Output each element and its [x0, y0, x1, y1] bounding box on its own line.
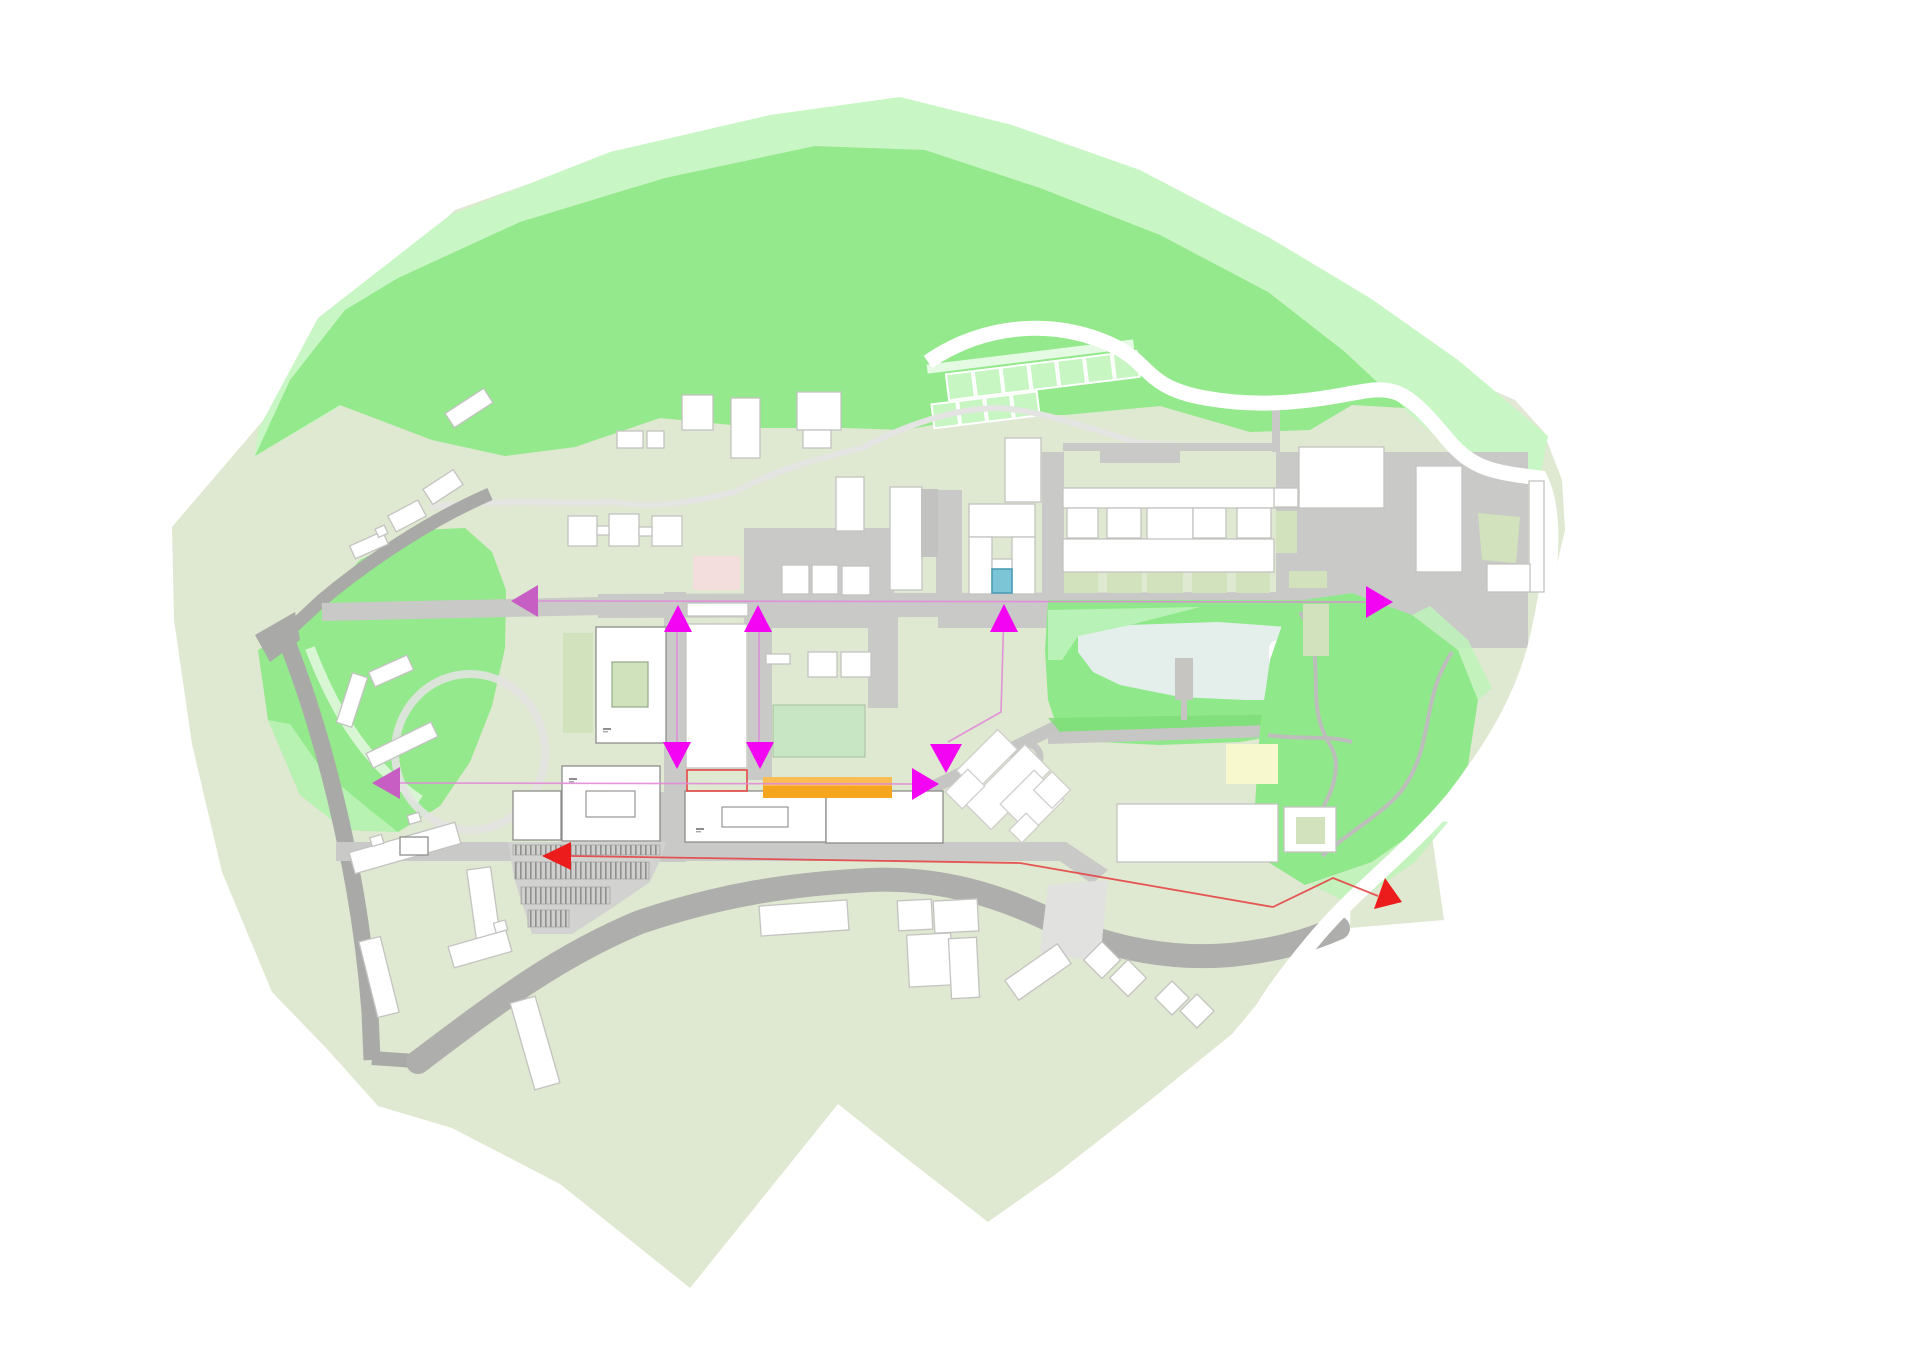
building-label-mark [696, 828, 704, 830]
pond-pier [1175, 658, 1193, 700]
building-footprint [1107, 508, 1141, 538]
building-footprint [969, 504, 1035, 537]
pink-building-footprint [693, 556, 740, 590]
building-footprint [639, 527, 652, 536]
building-footprint [826, 791, 943, 843]
building-footprint [1487, 564, 1530, 592]
building-footprint [766, 654, 790, 664]
building-footprint [597, 526, 609, 535]
building-footprint [1063, 488, 1303, 508]
road-segment [936, 490, 962, 600]
building-footprint [969, 537, 992, 594]
building-footprint [782, 565, 809, 594]
building-footprint [513, 791, 561, 840]
building-footprint [562, 766, 660, 841]
green-courtyard [1064, 572, 1098, 593]
sight-line-lower [400, 783, 912, 784]
building-footprint [1063, 539, 1274, 572]
building-footprint [652, 516, 682, 546]
building-label-mark [603, 731, 608, 732]
east-park [1255, 593, 1492, 905]
green-courtyard [1276, 511, 1297, 553]
building-footprint [1237, 508, 1271, 538]
building-footprint [812, 565, 838, 594]
building-label-mark [696, 831, 701, 832]
building-footprint [1067, 508, 1098, 538]
building-footprint [1117, 804, 1278, 862]
building-footprint [1299, 447, 1384, 508]
green-courtyard [1236, 572, 1270, 593]
building-footprint [1416, 466, 1462, 572]
building-label-mark [603, 728, 611, 730]
green-courtyard [1107, 572, 1142, 593]
building-footprint [1296, 817, 1325, 844]
parking-row [521, 887, 610, 904]
building-footprint [1012, 537, 1035, 594]
building-footprint [897, 899, 933, 931]
green-courtyard [1147, 572, 1183, 593]
building-footprint [841, 652, 871, 677]
building-footprint [808, 652, 837, 677]
parking-row [513, 845, 660, 855]
building-footprint [836, 477, 864, 531]
building-footprint [687, 603, 748, 616]
cyan-plunge-pool [992, 569, 1012, 593]
building-footprint [685, 791, 826, 842]
green-courtyard [1289, 571, 1327, 588]
green-courtyard [1192, 572, 1227, 593]
pond-pier-stem [1181, 700, 1187, 720]
building-footprint [842, 566, 870, 595]
building-footprint [682, 395, 713, 430]
building-footprint [948, 937, 979, 998]
building-footprint [731, 398, 760, 458]
building-footprint [1274, 488, 1298, 507]
site-plan-page [0, 0, 1920, 1358]
building-footprint [907, 933, 954, 987]
building-label-mark [569, 781, 574, 782]
building-footprint [612, 662, 648, 707]
building-footprint [686, 624, 747, 768]
building-footprint [1005, 438, 1041, 502]
yellow-court [1226, 744, 1278, 784]
building-footprint [759, 900, 849, 936]
sight-line-upper [538, 601, 1366, 602]
green-courtyard [1303, 604, 1329, 656]
building-label-mark [569, 778, 577, 780]
building-footprint [1529, 481, 1544, 592]
building-footprint [568, 516, 597, 546]
building-footprint [1193, 508, 1226, 538]
road-segment [1100, 447, 1180, 463]
building-footprint [400, 837, 428, 855]
green-courtyard [1478, 513, 1520, 563]
building-footprint [647, 431, 664, 448]
green-courtyard [563, 633, 593, 733]
building-footprint [797, 392, 841, 430]
building-footprint [933, 899, 979, 933]
building-footprint [617, 431, 643, 448]
parking-row [528, 910, 569, 927]
green-courtyard [773, 705, 865, 757]
building-footprint [921, 489, 938, 557]
site-plan-canvas [0, 0, 1920, 1358]
building-footprint [803, 430, 831, 448]
building-footprint [609, 514, 639, 546]
parking-row [515, 862, 649, 879]
road-segment [322, 606, 600, 612]
building-footprint [890, 487, 922, 590]
